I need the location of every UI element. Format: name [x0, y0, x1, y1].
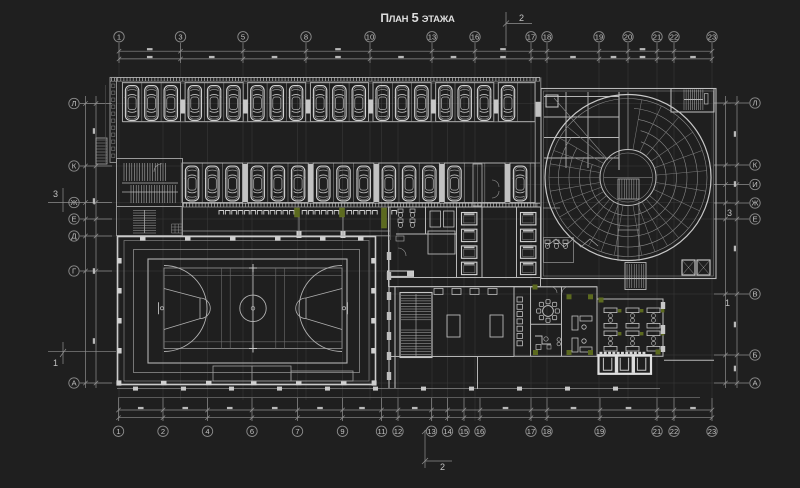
svg-text:4: 4 — [205, 427, 209, 436]
svg-text:Г: Г — [72, 267, 76, 276]
svg-text:1: 1 — [53, 358, 58, 368]
svg-text:К: К — [753, 161, 758, 170]
svg-text:21: 21 — [653, 427, 661, 436]
svg-text:Е: Е — [752, 215, 757, 224]
svg-text:3: 3 — [178, 33, 182, 42]
svg-text:21: 21 — [653, 33, 661, 42]
svg-text:9: 9 — [340, 427, 344, 436]
svg-text:20: 20 — [624, 33, 632, 42]
svg-text:17: 17 — [527, 427, 535, 436]
svg-text:23: 23 — [708, 33, 716, 42]
svg-text:2: 2 — [440, 462, 445, 472]
svg-text:13: 13 — [428, 33, 436, 42]
svg-text:Е: Е — [71, 215, 76, 224]
svg-text:2: 2 — [161, 427, 165, 436]
svg-text:Д: Д — [71, 232, 76, 241]
svg-text:18: 18 — [543, 33, 551, 42]
svg-text:1: 1 — [725, 298, 730, 308]
svg-text:В: В — [752, 290, 757, 299]
svg-text:6: 6 — [250, 427, 254, 436]
svg-text:19: 19 — [595, 33, 603, 42]
svg-text:Ж: Ж — [751, 199, 758, 208]
svg-text:1: 1 — [117, 33, 121, 42]
svg-text:И: И — [752, 180, 757, 189]
svg-text:22: 22 — [670, 427, 678, 436]
svg-text:Л: Л — [753, 99, 758, 108]
svg-text:3: 3 — [53, 189, 58, 199]
svg-text:11: 11 — [378, 427, 386, 436]
svg-text:2: 2 — [519, 13, 524, 23]
svg-text:Л: Л — [72, 99, 77, 108]
svg-text:3: 3 — [727, 208, 732, 218]
svg-text:22: 22 — [670, 33, 678, 42]
svg-text:13: 13 — [427, 427, 435, 436]
svg-text:15: 15 — [460, 427, 468, 436]
svg-text:10: 10 — [366, 33, 374, 42]
svg-text:18: 18 — [543, 427, 551, 436]
svg-text:23: 23 — [708, 427, 716, 436]
svg-text:К: К — [72, 162, 77, 171]
svg-text:16: 16 — [476, 427, 484, 436]
svg-text:1: 1 — [116, 427, 120, 436]
svg-text:5: 5 — [241, 33, 245, 42]
svg-text:19: 19 — [596, 427, 604, 436]
svg-text:7: 7 — [295, 427, 299, 436]
svg-text:14: 14 — [443, 427, 451, 436]
svg-text:16: 16 — [471, 33, 479, 42]
svg-text:Б: Б — [753, 351, 758, 360]
svg-text:12: 12 — [394, 427, 402, 436]
svg-text:8: 8 — [304, 33, 308, 42]
svg-text:17: 17 — [527, 33, 535, 42]
